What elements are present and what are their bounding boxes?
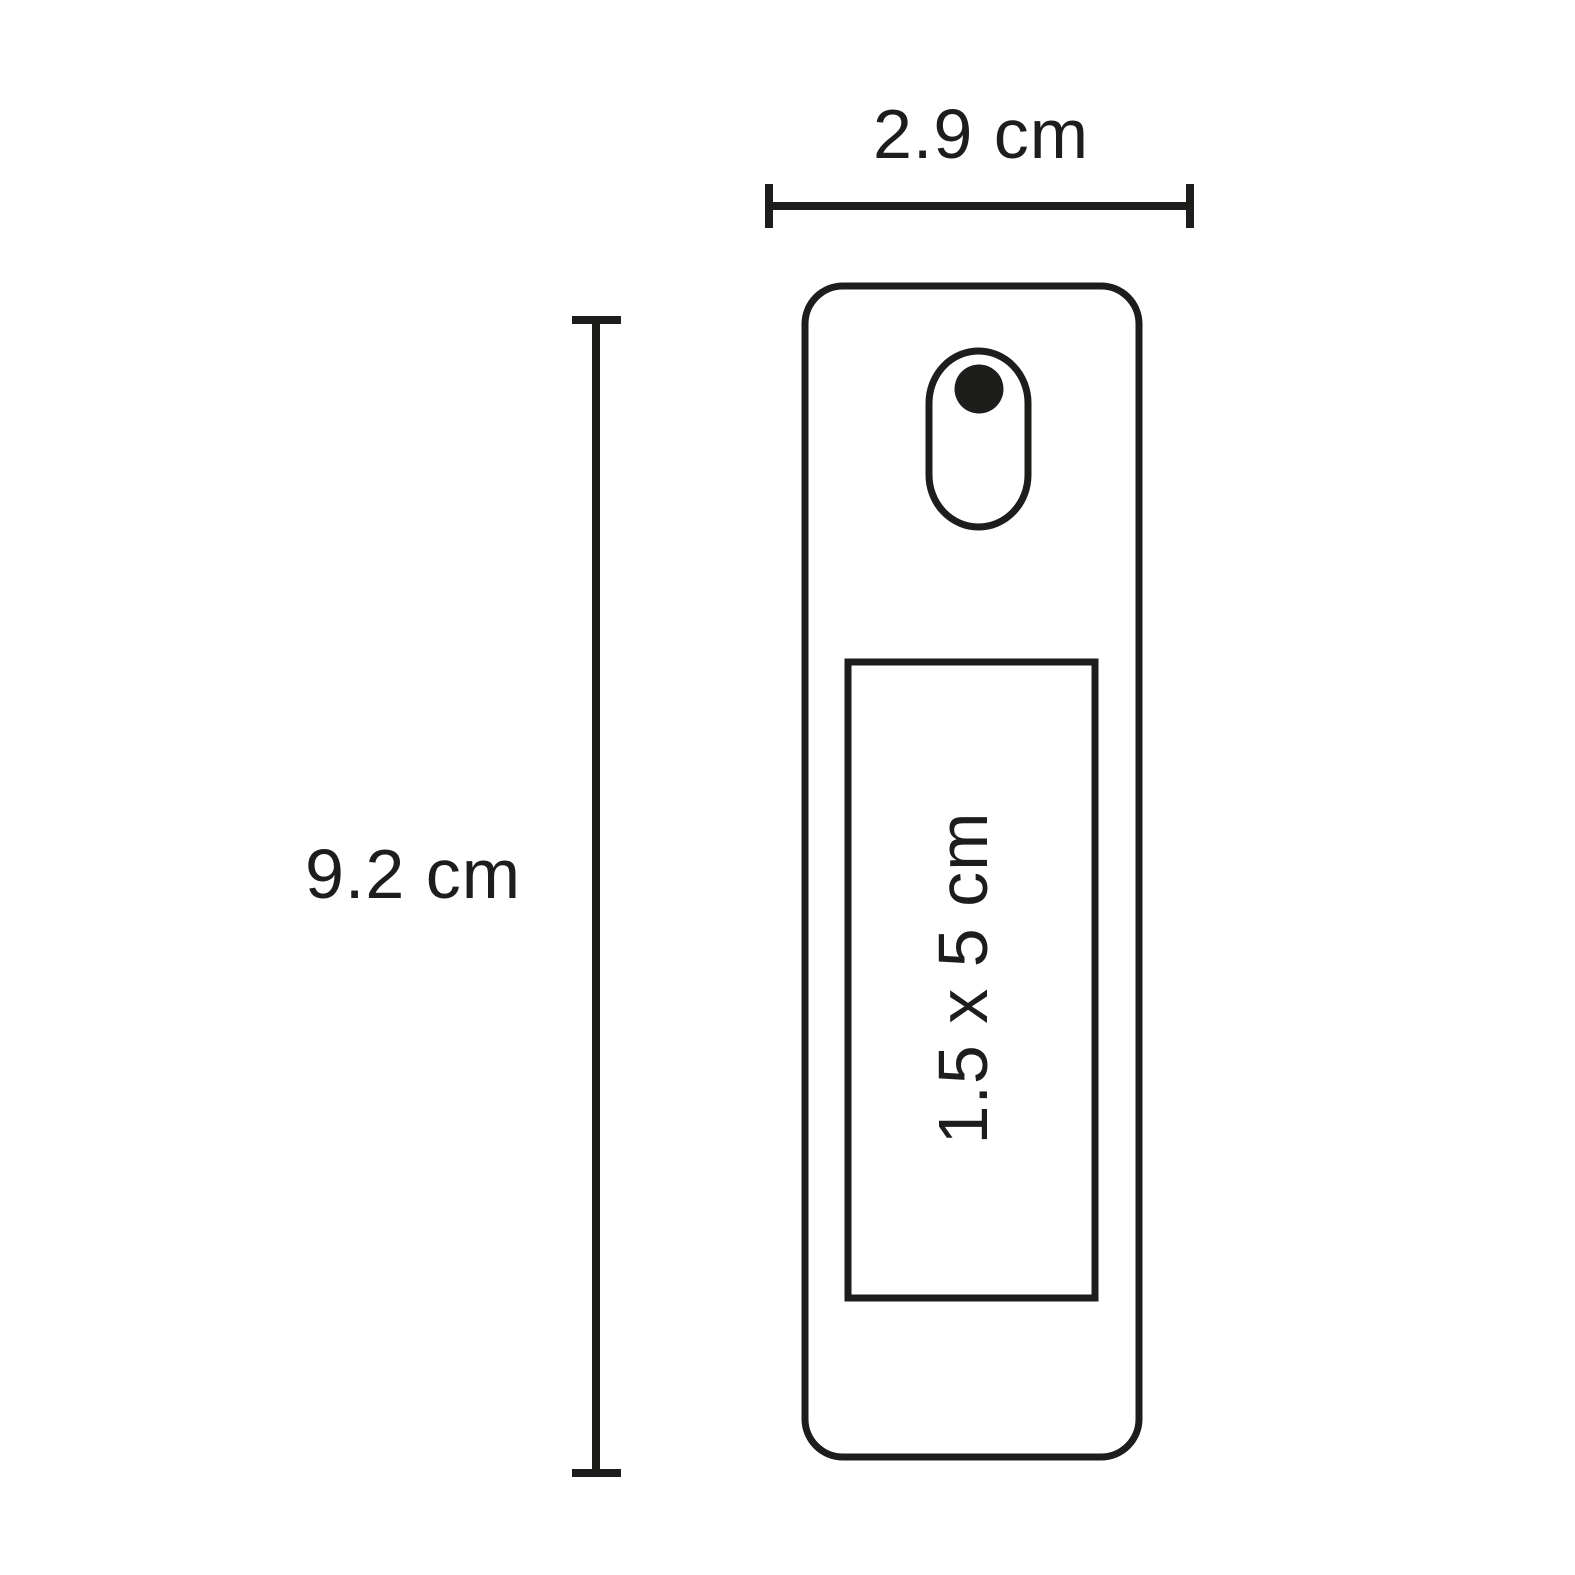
spray-nozzle-dot <box>955 365 1004 414</box>
spray-nozzle <box>929 351 1028 527</box>
spray-bottle-dimension-diagram: 2.9 cm 9.2 cm 1.5 x 5 cm <box>0 0 1575 1575</box>
width-dimension-label: 2.9 cm <box>873 95 1089 173</box>
height-dimension: 9.2 cm <box>305 320 621 1473</box>
print-area-label: 1.5 x 5 cm <box>924 812 1002 1145</box>
print-area: 1.5 x 5 cm <box>848 662 1095 1298</box>
dimension-diagram-canvas: 2.9 cm 9.2 cm 1.5 x 5 cm <box>0 0 1575 1575</box>
width-dimension: 2.9 cm <box>769 95 1190 228</box>
height-dimension-label: 9.2 cm <box>305 835 521 913</box>
